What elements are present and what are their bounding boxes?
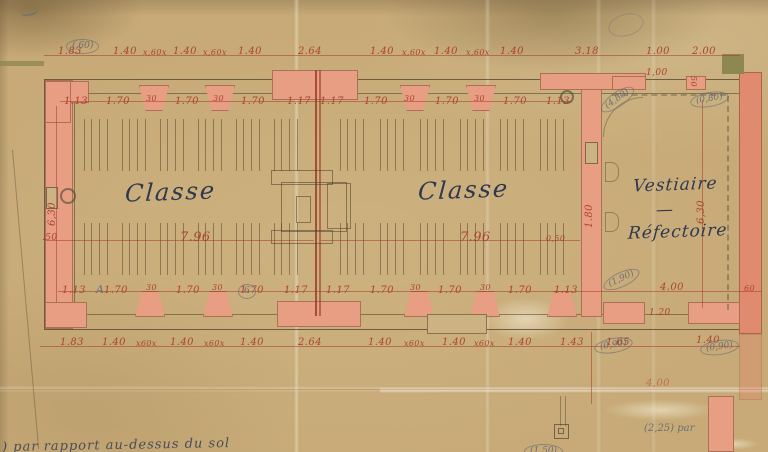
right-wall: [739, 72, 762, 334]
bench-desks: [274, 223, 298, 275]
tick-line: [727, 96, 729, 310]
dim-label: 3.18: [575, 47, 599, 57]
dim-label: .50: [42, 234, 58, 243]
dim-label: 1.13: [64, 97, 88, 107]
dim-label: 1.70: [438, 286, 462, 296]
room-label-classe-left: Classe: [124, 176, 217, 207]
partition-wall-stem: [581, 89, 602, 317]
dim-label: 1.40: [240, 338, 264, 348]
dim-label: 1.70: [176, 286, 200, 296]
vestiaire-bottom-wall: [603, 302, 645, 324]
dim-label: 30: [212, 284, 223, 292]
dim-label: x,60x: [143, 49, 167, 57]
dim-label: x,60x: [203, 49, 227, 57]
dim-label-vertical: 6,30: [48, 202, 58, 226]
dim-label: 2.64: [298, 338, 322, 348]
bottom-left-corner-block: [45, 302, 87, 328]
dim-label: 30: [213, 95, 224, 103]
dim-label: 1.40: [170, 338, 194, 348]
dim-label: 1.40: [368, 338, 392, 348]
dim-label: 0,50: [546, 235, 565, 243]
bench-desks: [236, 119, 260, 171]
dim-label: 1.40: [442, 338, 466, 348]
dim-label: 60: [744, 285, 755, 293]
dim-label: 1.13: [554, 286, 578, 296]
hinge-ring: [60, 188, 76, 204]
bench-desks: [84, 223, 108, 275]
bench-desks: [84, 119, 108, 171]
dim-label: 30: [480, 284, 491, 292]
dim-label: 1.17: [326, 286, 350, 296]
dim-label: 1.40: [434, 47, 458, 57]
room-label-vestiaire: Vestiaire: [632, 173, 718, 196]
dim-label: 1.40: [508, 338, 532, 348]
dim-label: 1.00: [646, 47, 670, 57]
dim-label: 2.00: [692, 47, 716, 57]
dimension-line-vertical: [591, 332, 592, 404]
bench-desks: [460, 119, 484, 171]
door-leaf: [605, 162, 619, 182]
left-olive-bar: [0, 61, 44, 66]
bench-desks: [420, 223, 444, 275]
dim-label: 1.70: [364, 97, 388, 107]
stove-detail: [296, 196, 311, 223]
dim-label: 1.40: [370, 47, 394, 57]
dim-label: 30: [410, 284, 421, 292]
bench-desks: [380, 223, 404, 275]
dim-label: 1.40: [173, 47, 197, 57]
bench-desks: [420, 119, 444, 171]
axis-line: [560, 396, 566, 426]
dim-label: x60x: [204, 340, 225, 348]
garden-wall-strip: [708, 396, 734, 452]
right-wall-extension: [739, 334, 762, 400]
pencil-note: (2,25) par: [644, 424, 694, 434]
dim-label: 1.70: [435, 97, 459, 107]
pencil-note: A: [96, 284, 104, 295]
bench-desks: [122, 223, 146, 275]
dim-label: 1.70: [106, 97, 130, 107]
bench-desks: [340, 223, 364, 275]
dim-label: 1.40: [238, 47, 262, 57]
dim-label: 30: [474, 95, 485, 103]
bench-desks: [236, 223, 260, 275]
door-leaf: [605, 212, 619, 232]
dim-label: 1.20: [649, 309, 671, 318]
dim-label-vertical: 50: [689, 76, 697, 87]
dim-label: 1.17: [287, 97, 311, 107]
pencil-note: 6: [238, 284, 256, 299]
paper-fold: [380, 386, 768, 394]
dim-label: 30: [146, 95, 157, 103]
dim-label: x60x: [474, 340, 495, 348]
dim-label: 1.83: [60, 338, 84, 348]
room-label-separator: —: [655, 200, 674, 221]
dim-label: 1.17: [284, 286, 308, 296]
dim-label: 1.70: [503, 97, 527, 107]
dim-label: x60x: [136, 340, 157, 348]
dim-label: x60x: [404, 340, 425, 348]
entrance-recess: [427, 314, 487, 334]
handwritten-note: ) par rapport au-dessus du sol: [2, 436, 230, 452]
dimension-line: [321, 240, 580, 241]
dim-label: x,60x: [402, 49, 426, 57]
dim-label: 1.70: [104, 286, 128, 296]
dim-label: 7.96: [460, 231, 491, 244]
pencil-note: (1,50): [524, 444, 563, 452]
bench-desks: [274, 119, 298, 171]
bench-desks: [500, 223, 524, 275]
wall-niche: [585, 142, 598, 164]
dim-label: 1.13: [62, 286, 86, 296]
dim-label: 1,00: [646, 69, 668, 78]
bench-desks: [380, 119, 404, 171]
dim-label: 1.70: [241, 97, 265, 107]
vestiaire-bottom-wall: [688, 302, 740, 324]
bench-desks: [540, 119, 564, 171]
dim-label: 1.70: [508, 286, 532, 296]
dim-label: 1.43: [560, 338, 584, 348]
dim-label: 1.17: [320, 97, 344, 107]
pencil-note: (,60): [66, 39, 99, 54]
ground-reference-line: [0, 389, 768, 390]
dim-label: 4,00: [646, 379, 670, 389]
dim-label: 2.64: [298, 47, 322, 57]
dim-label-vertical: 1.80: [585, 204, 595, 228]
bench-desks: [122, 119, 146, 171]
room-label-refectoire: Réfectoire: [627, 220, 728, 244]
dim-label: 1.40: [113, 47, 137, 57]
dim-label: 30: [404, 95, 415, 103]
survey-marker-inner: [558, 428, 564, 434]
dim-label: 1.13: [546, 97, 570, 107]
bench-desks: [540, 223, 564, 275]
bench-desks: [500, 119, 524, 171]
dimension-line: [60, 101, 572, 102]
dim-label: 7.96: [180, 231, 211, 244]
room-label-classe-right: Classe: [417, 174, 510, 205]
fold-line: [12, 150, 39, 449]
scanned-floor-plan: 1.83 1.40 x,60x 1.40 x,60x 1.40 2.64 1.4…: [0, 0, 768, 452]
corner-olive-block: [722, 54, 744, 74]
bench-desks: [198, 119, 222, 171]
dim-label: 1.40: [102, 338, 126, 348]
dim-label: x,60x: [466, 49, 490, 57]
dim-label: 1.70: [370, 286, 394, 296]
bench-desks: [160, 119, 184, 171]
dim-label: 30: [146, 284, 157, 292]
dim-label: 4.00: [660, 283, 684, 293]
dim-label: 1.40: [500, 47, 524, 57]
dim-label: 1.70: [175, 97, 199, 107]
bench-desks: [340, 119, 364, 171]
